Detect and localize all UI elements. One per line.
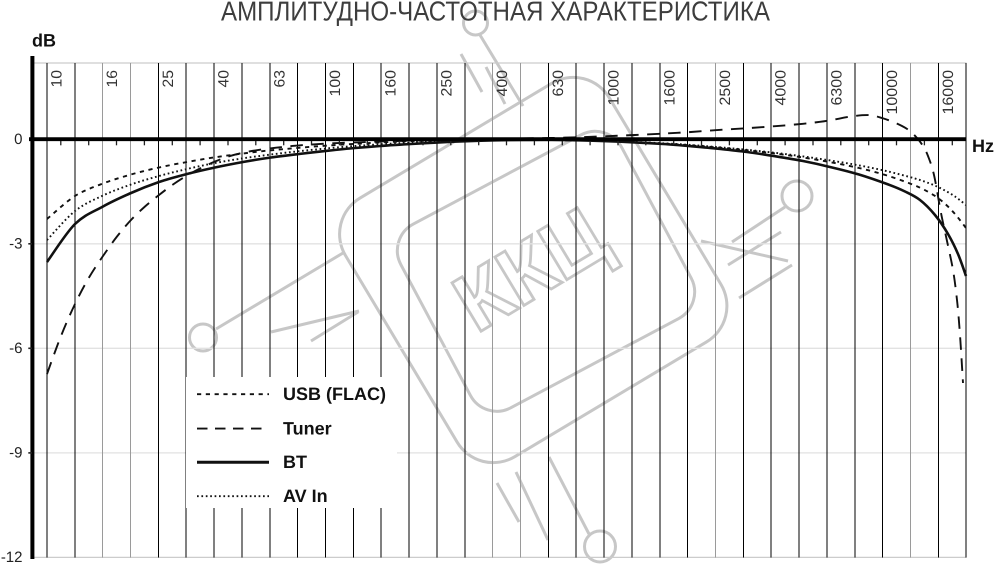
svg-text:25: 25	[160, 70, 177, 88]
svg-text:0: 0	[14, 131, 22, 148]
svg-text:USB (FLAC): USB (FLAC)	[283, 384, 386, 404]
svg-text:-9: -9	[9, 445, 22, 462]
svg-text:Tuner: Tuner	[283, 418, 332, 438]
svg-text:Hz: Hz	[972, 136, 994, 156]
svg-text:-6: -6	[9, 340, 22, 357]
svg-text:63: 63	[271, 70, 288, 88]
svg-text:1600: 1600	[661, 70, 678, 106]
svg-text:6300: 6300	[828, 70, 845, 106]
svg-text:100: 100	[327, 70, 344, 97]
svg-text:dB: dB	[32, 31, 56, 51]
svg-text:АМПЛИТУДНО-ЧАСТОТНАЯ ХАРАКТЕРИ: АМПЛИТУДНО-ЧАСТОТНАЯ ХАРАКТЕРИСТИКА	[221, 0, 771, 27]
svg-text:400: 400	[494, 70, 511, 97]
svg-text:40: 40	[216, 70, 233, 88]
svg-text:10000: 10000	[884, 70, 901, 115]
svg-text:-12: -12	[1, 549, 23, 566]
svg-text:16000: 16000	[940, 70, 957, 115]
svg-text:4000: 4000	[773, 70, 790, 106]
svg-text:10: 10	[48, 70, 65, 88]
svg-text:250: 250	[438, 70, 455, 97]
svg-text:160: 160	[383, 70, 400, 97]
svg-text:-3: -3	[9, 236, 22, 253]
svg-text:630: 630	[550, 70, 567, 97]
svg-text:2500: 2500	[717, 70, 734, 106]
svg-text:BT: BT	[283, 452, 307, 472]
svg-text:1000: 1000	[606, 70, 623, 106]
svg-text:16: 16	[104, 70, 121, 88]
svg-text:AV In: AV In	[283, 486, 328, 506]
